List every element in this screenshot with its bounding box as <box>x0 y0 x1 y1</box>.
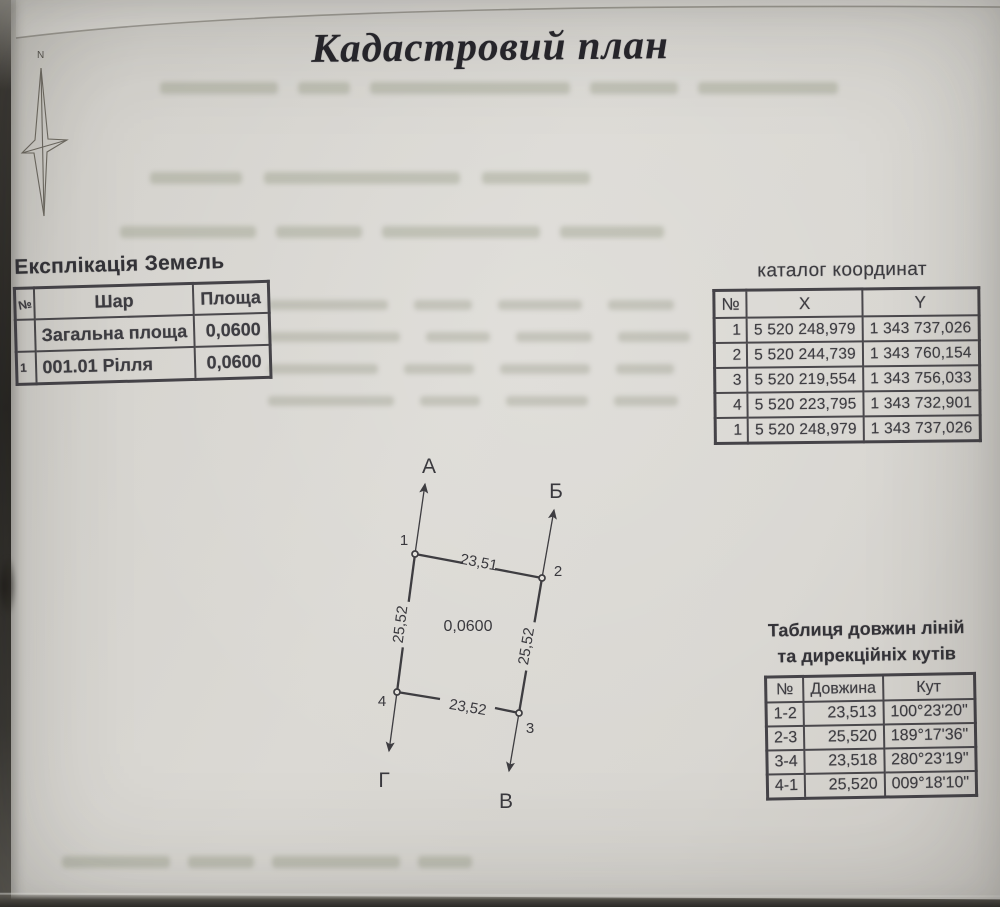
cell-area: 0,0600 <box>194 313 270 347</box>
vertex-point-1 <box>412 551 418 557</box>
cell-x: 5 520 248,979 <box>748 416 864 443</box>
cell-num: 4 <box>715 393 748 418</box>
cell-num: 1 <box>715 418 748 444</box>
direction-ray-a <box>415 484 425 554</box>
title-line2: та дирекційніх кутів <box>777 643 956 666</box>
cell-num <box>15 319 36 352</box>
bleedthrough-smudge <box>268 332 690 342</box>
bleedthrough-smudge <box>160 82 838 94</box>
col-header-num: № <box>766 676 804 702</box>
cell-length: 23,513 <box>804 701 884 726</box>
bleedthrough-smudge <box>62 856 472 868</box>
direction-label-b: Б <box>549 480 563 503</box>
direction-label-a: А <box>422 455 436 478</box>
lengths-bearings-title: Таблиця довжин ліній та дирекційніх куті… <box>741 614 992 670</box>
table-row: 3-4 23,518 280°23'19" <box>767 747 977 775</box>
cell-angle: 009°18'10" <box>884 771 976 797</box>
cell-angle: 280°23'19" <box>884 747 976 773</box>
table-row: 3 5 520 219,554 1 343 756,033 <box>715 365 980 393</box>
col-header-num: № <box>714 290 747 318</box>
cell-y: 1 343 737,026 <box>864 415 980 442</box>
side-length-left: 25,52 <box>390 605 412 644</box>
side-length-right: 25,52 <box>515 626 538 666</box>
cell-num: 2-3 <box>766 726 804 751</box>
vertex-point-3 <box>516 710 522 716</box>
table-row: 2-3 25,520 189°17'36" <box>766 723 976 751</box>
north-arrow-icon: N <box>10 40 80 230</box>
cell-y: 1 343 732,901 <box>863 390 979 416</box>
cell-angle: 189°17'36" <box>884 723 976 749</box>
explication-section: Експлікація Земель № Шар Площа Загальна … <box>12 249 272 386</box>
cell-angle: 100°23'20" <box>883 699 975 725</box>
cell-num: 4-1 <box>767 774 805 799</box>
cell-num: 1 <box>16 351 37 384</box>
vertex-label-2: 2 <box>554 563 562 580</box>
col-header-num: № <box>14 288 35 320</box>
cell-num: 2 <box>714 343 747 368</box>
table-row: 4-1 25,520 009°18'10" <box>767 771 977 799</box>
lengths-bearings-table: № Довжина Кут 1-2 23,513 100°23'20" 2-3 … <box>764 672 978 801</box>
direction-ray-v <box>509 713 519 771</box>
col-header-y: Y <box>862 288 979 317</box>
coordinate-table: № X Y 1 5 520 248,979 1 343 737,026 2 5 … <box>712 286 981 445</box>
table-row: 1 5 520 248,979 1 343 737,026 <box>714 315 979 343</box>
parcel-area-label: 0,0600 <box>444 618 493 635</box>
cell-length: 25,520 <box>804 725 884 750</box>
bleedthrough-smudge <box>268 396 678 406</box>
cell-y: 1 343 737,026 <box>863 315 979 341</box>
cell-length: 25,520 <box>805 773 885 799</box>
side-length-bottom: 23,52 <box>448 696 488 719</box>
col-header-layer: Шар <box>34 283 193 319</box>
cell-y: 1 343 760,154 <box>863 340 979 366</box>
explication-heading: Експлікація Земель <box>14 249 269 280</box>
coordinate-catalog-section: каталог координат № X Y 1 5 520 248,979 … <box>712 258 982 445</box>
cell-x: 5 520 248,979 <box>747 316 863 342</box>
table-row: 1 5 520 248,979 1 343 737,026 <box>715 415 980 443</box>
vertex-label-3: 3 <box>526 720 534 737</box>
table-row: 1-2 23,513 100°23'20" <box>766 699 976 727</box>
table-row: 4 5 520 223,795 1 343 732,901 <box>715 390 980 418</box>
table-row: 2 5 520 244,739 1 343 760,154 <box>714 340 979 368</box>
direction-label-v: В <box>499 790 513 813</box>
vertex-point-4 <box>394 689 400 695</box>
col-header-x: X <box>747 289 863 318</box>
col-header-length: Довжина <box>803 675 883 702</box>
cell-num: 3-4 <box>767 750 805 775</box>
explication-table: № Шар Площа Загальна площа 0,0600 1 001.… <box>13 280 272 386</box>
bleedthrough-smudge <box>120 226 664 238</box>
spine-shadow-blob <box>0 558 15 614</box>
vertex-label-4: 4 <box>378 693 386 710</box>
direction-label-g: Г <box>378 769 389 792</box>
cell-num: 1-2 <box>766 702 804 727</box>
coordinate-catalog-title: каталог координат <box>712 258 972 283</box>
cell-area: 0,0600 <box>195 345 271 380</box>
cell-x: 5 520 219,554 <box>747 366 863 392</box>
lengths-bearings-section: Таблиця довжин ліній та дирекційніх куті… <box>741 614 994 801</box>
cell-num: 3 <box>715 368 748 393</box>
vertex-label-1: 1 <box>400 532 408 549</box>
cell-y: 1 343 756,033 <box>863 365 979 391</box>
cell-num: 1 <box>714 318 747 343</box>
vertex-point-2 <box>539 575 545 581</box>
table-row: 1 001.01 Рілля 0,0600 <box>16 345 270 385</box>
direction-ray-g <box>389 692 397 751</box>
cell-x: 5 520 244,739 <box>747 341 863 367</box>
bleedthrough-smudge <box>268 364 674 374</box>
bleedthrough-smudge <box>150 172 590 184</box>
side-length-top: 23,51 <box>459 551 499 575</box>
cell-x: 5 520 223,795 <box>748 391 864 417</box>
cell-layer: Загальна площа <box>35 315 195 351</box>
title-line1: Таблиця довжин ліній <box>768 617 965 640</box>
parcel-diagram: А Б В Г 1 2 3 4 23,51 23,52 25,52 25,52 … <box>355 440 595 820</box>
direction-ray-b <box>542 510 554 578</box>
cell-layer: 001.01 Рілля <box>36 347 196 384</box>
col-header-angle: Кут <box>883 673 975 700</box>
cell-length: 23,518 <box>804 749 884 774</box>
bleedthrough-smudge <box>268 300 674 310</box>
north-label: N <box>37 50 44 61</box>
page-title: Кадастровий план <box>0 17 980 75</box>
col-header-area: Площа <box>193 281 269 315</box>
